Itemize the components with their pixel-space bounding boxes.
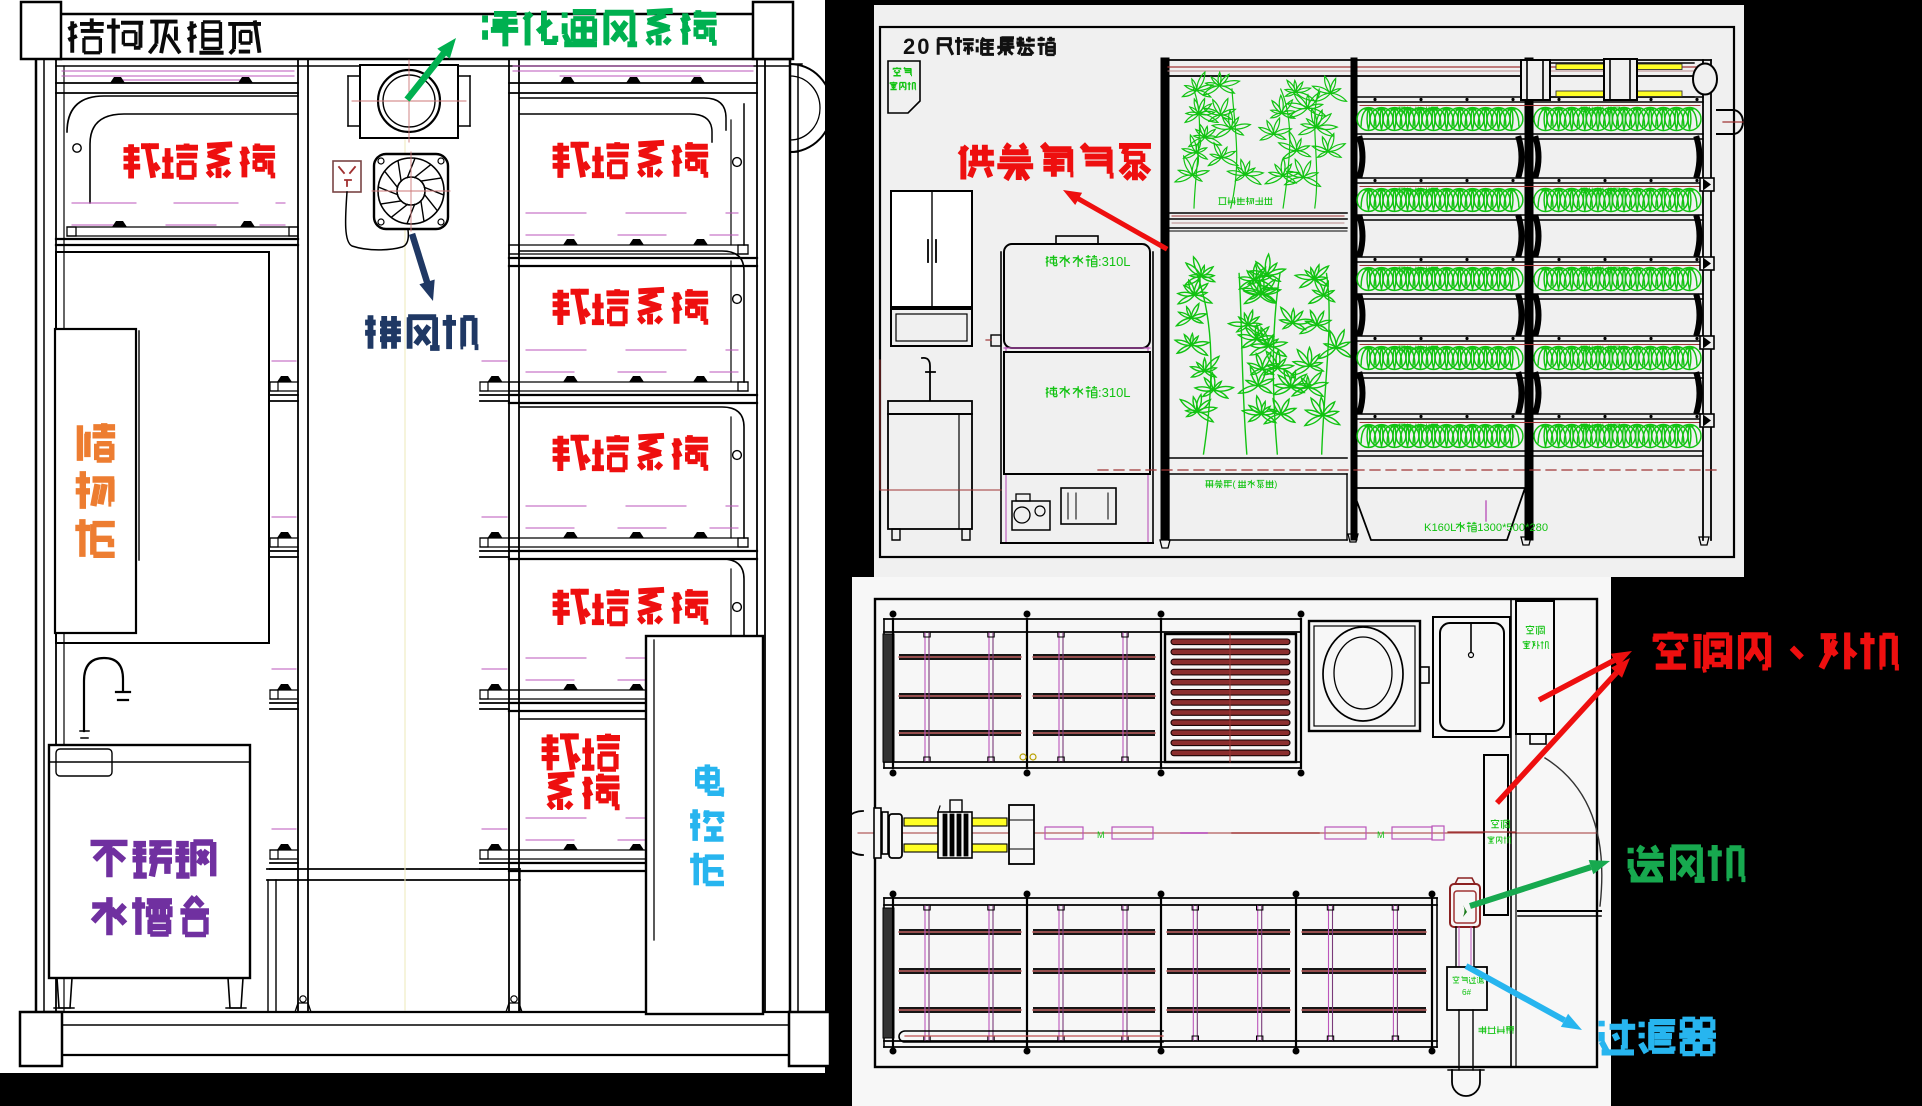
- svg-text:(: (: [1233, 479, 1236, 489]
- svg-text:M: M: [1097, 830, 1105, 840]
- svg-text:6#: 6#: [1462, 988, 1472, 997]
- svg-text:): ): [1274, 479, 1277, 489]
- svg-text:20: 20: [903, 34, 931, 59]
- svg-text::310L: :310L: [1098, 385, 1131, 400]
- svg-text:K160L: K160L: [1424, 522, 1456, 534]
- svg-text::310L: :310L: [1098, 254, 1131, 269]
- svg-text:M: M: [1377, 830, 1385, 840]
- svg-text:1300*500*280: 1300*500*280: [1477, 522, 1548, 534]
